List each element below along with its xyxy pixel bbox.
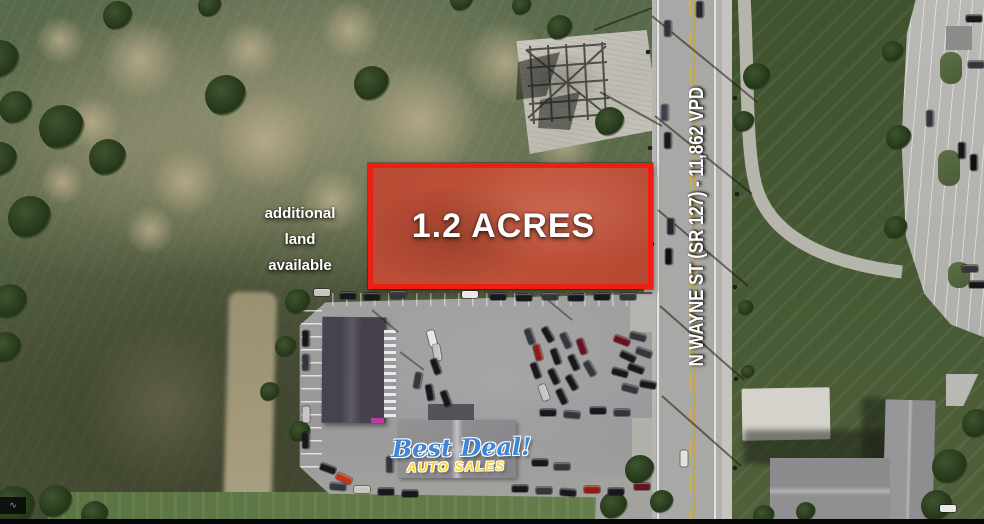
parked-car [668,218,675,234]
parked-car [540,409,556,416]
tree [600,492,628,520]
parked-car [697,1,704,17]
parked-car [568,294,584,301]
dirt-patch [220,20,280,80]
tree [962,409,984,439]
tree [260,382,280,402]
parked-car [303,330,310,346]
parked-car [665,132,672,148]
parked-car [303,354,310,370]
parked-car [968,61,984,68]
parked-car [512,485,528,492]
logo-script-text: Best Deal! [392,435,520,461]
additional-land-line3: available [238,253,362,279]
tree [0,91,33,125]
southeast-building-roof [770,458,890,524]
parked-car [303,406,310,422]
letterbox-bar [0,519,984,524]
logo-subtitle-text: AUTO SALES [392,459,520,475]
tree [882,41,904,63]
tree [547,15,573,41]
parked-car [940,505,956,512]
tree [738,300,754,316]
tree [205,75,247,117]
storefront-awning [371,418,384,423]
parked-car [330,482,347,490]
parked-car [390,291,406,298]
tree [595,107,625,137]
parked-car [354,486,370,493]
additional-land-label: additional land available [238,201,362,279]
dealership-building-dark-roof [322,317,387,424]
additional-land-line1: additional [238,201,362,227]
parked-car [665,20,672,36]
parked-car [554,463,570,470]
parked-car [584,486,600,493]
parked-car [681,450,688,466]
parked-car [490,293,506,300]
side-road-corner [946,374,984,406]
acreage-label: 1.2 ACRES [412,207,609,246]
parked-car [634,483,650,490]
tree [103,1,133,31]
parked-car [966,15,982,22]
tree [650,490,674,514]
tree [8,196,52,240]
parked-car [340,292,356,299]
parked-car [962,265,978,272]
road-edge-line [714,0,716,524]
aerial-site-map: 1.2 ACRES additional land available N WA… [0,0,984,524]
best-deal-auto-sales-logo: Best Deal! AUTO SALES [392,435,521,475]
tree [275,336,297,358]
tree [741,365,755,379]
parking-island [940,52,962,84]
parked-car [666,248,673,264]
dirt-patch [40,160,85,205]
tree [743,63,771,91]
parked-car [402,490,418,497]
additional-land-line2: land [238,227,362,253]
parked-car [314,289,330,296]
parked-car [532,459,548,466]
parked-car [594,293,610,300]
parked-car [364,293,380,300]
tree [884,216,908,240]
map-watermark: ∿ [0,497,26,514]
parked-car [462,291,478,298]
parked-car [378,488,394,495]
dirt-patch [320,0,380,60]
dirt-patch [35,15,85,65]
parked-car [614,409,630,416]
dumpster-pad [946,26,972,50]
highlighted-parcel: 1.2 ACRES [368,163,653,289]
parked-car [662,104,669,120]
parked-car [620,293,636,300]
tree [932,449,968,485]
tree [354,66,390,102]
parked-car [927,110,934,126]
tree [39,105,85,151]
tree [886,125,912,151]
road-name-label: N WAYNE ST (SR 127) - 11,862 VPD [686,98,708,367]
tree [39,485,73,519]
dirt-patch [125,205,175,255]
parked-car [542,293,558,300]
parked-car [303,432,310,448]
worn-field-patch [80,320,250,490]
dirt-patch [100,20,180,100]
parking-island [938,150,960,186]
parked-car [608,488,624,495]
rooftop-units [384,330,396,418]
parked-car [959,142,966,158]
parked-car [564,410,581,418]
tree [285,289,311,315]
parked-car [536,487,552,494]
parked-car [516,294,532,301]
tree [89,139,127,177]
parked-car [969,281,984,288]
tree [625,455,655,485]
tree [733,111,755,133]
parked-car [590,407,606,414]
parked-car [971,154,978,170]
parked-car [560,488,577,496]
